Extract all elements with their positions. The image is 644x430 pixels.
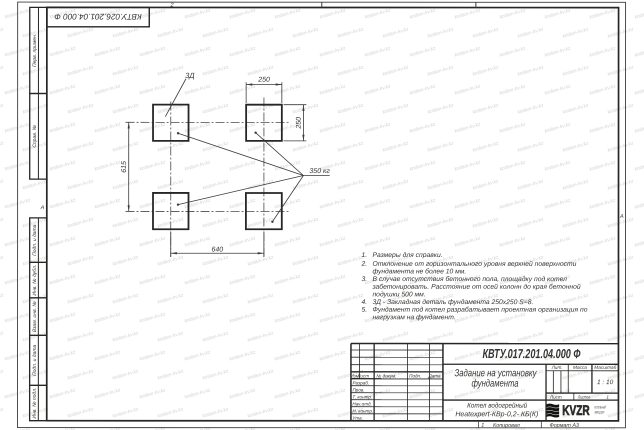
svg-text:Фундамент под котел разрабатыв: Фундамент под котел разрабатывает проект… [372, 306, 587, 314]
svg-text:Справ. №: Справ. № [32, 124, 38, 147]
svg-text:1 : 10: 1 : 10 [597, 379, 614, 386]
svg-text:Нач.отд.: Нач.отд. [352, 402, 371, 407]
svg-text:3.: 3. [361, 276, 367, 283]
svg-text:3Д - Закладная деталь фундамен: 3Д - Закладная деталь фундамента 250x250… [372, 298, 533, 306]
svg-text:2: 2 [170, 3, 174, 9]
svg-text:фундамента: фундамента [472, 378, 519, 390]
svg-text:Пров.: Пров. [352, 388, 364, 393]
svg-text:А: А [40, 205, 45, 211]
svg-text:615: 615 [121, 161, 128, 173]
svg-text:Отклонение от горизонтального: Отклонение от горизонтального уровня вер… [372, 260, 576, 268]
svg-text:КВТУ.017.201.04.000 Ф: КВТУ.017.201.04.000 Ф [482, 346, 581, 361]
svg-text:5.: 5. [361, 307, 367, 314]
svg-text:подушки 500 мм.: подушки 500 мм. [372, 290, 425, 298]
svg-text:Инв. № дубл.: Инв. № дубл. [32, 265, 38, 296]
svg-text:Листов: Листов [577, 395, 590, 400]
svg-text:2.: 2. [360, 261, 367, 268]
svg-text:Дата: Дата [427, 374, 441, 379]
svg-text:Котел водогрейный: Котел водогрейный [467, 402, 527, 410]
svg-text:3Д: 3Д [185, 71, 195, 80]
svg-text:№ докум.: № докум. [376, 374, 396, 379]
svg-text:КВТУ.026.201.04.000 Ф: КВТУ.026.201.04.000 Ф [54, 12, 142, 21]
svg-text:забетонировать. Расстояние от: забетонировать. Расстояние от осей колон… [371, 283, 580, 291]
svg-text:Копировал: Копировал [493, 423, 520, 429]
svg-text:фундамента не более 10 мм.: фундамента не более 10 мм. [372, 267, 466, 275]
svg-text:1.: 1. [361, 252, 367, 259]
svg-text:Подп.: Подп. [409, 374, 421, 379]
svg-text:Масса: Масса [573, 365, 587, 370]
svg-text:КОТЕЛЬНЫЙ: КОТЕЛЬНЫЙ [594, 405, 606, 409]
svg-text:Размеры для справки.: Размеры для справки. [372, 251, 442, 259]
svg-text:А: А [619, 214, 624, 220]
svg-text:Формат А3: Формат А3 [549, 423, 579, 429]
svg-text:Масштаб: Масштаб [594, 365, 616, 370]
svg-text:250: 250 [296, 117, 303, 130]
svg-text:Heatexpert-КВр-0,2- КБ(К): Heatexpert-КВр-0,2- КБ(К) [455, 411, 538, 418]
svg-text:640: 640 [211, 247, 223, 254]
svg-text:нагрузкам на фундамент.: нагрузкам на фундамент. [372, 313, 455, 321]
svg-text:Утв.: Утв. [352, 416, 362, 421]
svg-text:Взам. инв. №: Взам. инв. № [32, 301, 38, 333]
svg-text:Разраб.: Разраб. [352, 381, 369, 386]
svg-text:4.: 4. [361, 299, 367, 306]
svg-text:350 кг: 350 кг [309, 168, 330, 175]
svg-text:Подп. и дата: Подп. и дата [32, 224, 38, 256]
svg-text:Лит.: Лит. [551, 365, 563, 370]
svg-text:Лист: Лист [356, 374, 369, 379]
svg-text:Перв. примен.: Перв. примен. [32, 34, 38, 67]
svg-text:Н. контр.: Н. контр. [352, 409, 373, 414]
svg-text:Лист: Лист [549, 395, 562, 400]
svg-text:Инв. № подл.: Инв. № подл. [32, 388, 38, 419]
svg-text:1: 1 [481, 423, 484, 429]
svg-text:KVZR: KVZR [562, 402, 590, 418]
svg-text:Т. контр.: Т. контр. [352, 395, 372, 400]
svg-text:ЗАВОД ЕЗР: ЗАВОД ЕЗР [594, 410, 604, 414]
svg-text:Подп. и дата: Подп. и дата [32, 345, 38, 377]
svg-text:1: 1 [606, 395, 609, 400]
svg-text:250: 250 [257, 77, 270, 84]
svg-text:В случае отсутствия бетонного: В случае отсутствия бетонного пола, площ… [372, 275, 567, 283]
